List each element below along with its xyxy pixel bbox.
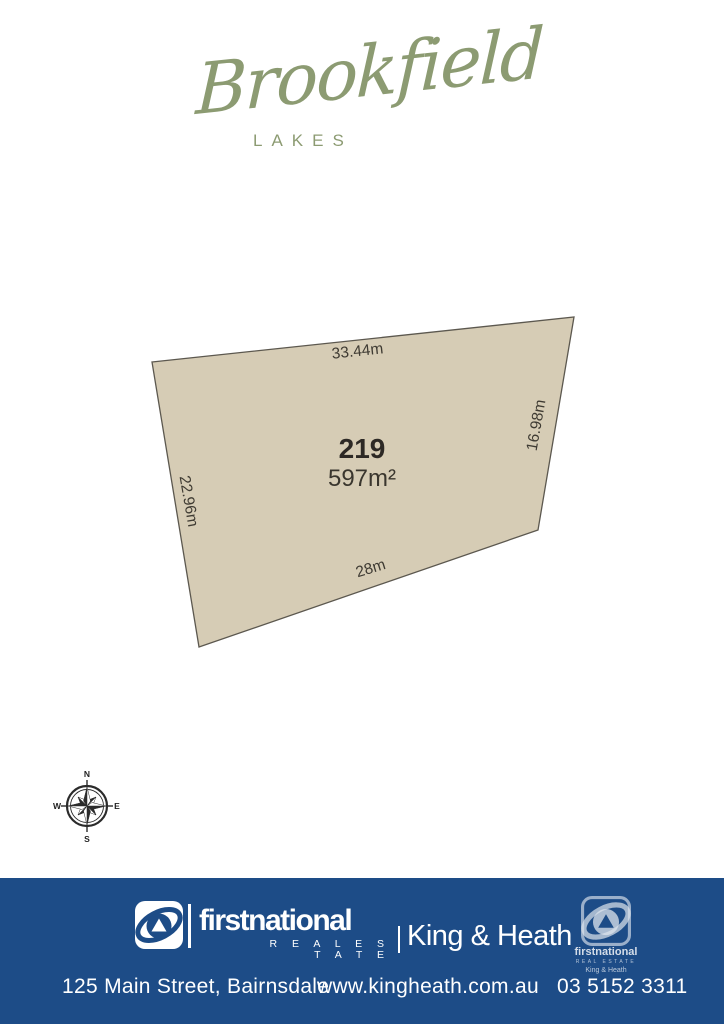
footer-band: firstnational R E A L E S T A T E King &… [0, 878, 724, 1024]
compass-north-label: N [84, 769, 90, 779]
compass-south-label: S [84, 834, 90, 844]
watermark-logo-icon [581, 896, 631, 946]
website-url: www.kingheath.com.au [317, 975, 539, 999]
watermark-logo: firstnational REAL ESTATE King & Heath [570, 896, 642, 977]
compass-rose-icon: N S W E [53, 766, 121, 848]
logo-divider [188, 904, 191, 948]
brand-logo-subtitle: LAKES [253, 131, 353, 151]
lot-area: 597m² [328, 465, 396, 492]
watermark-tagline: REAL ESTATE [570, 959, 642, 966]
phone-number: 03 5152 3311 [557, 975, 688, 999]
firstnational-wordmark: firstnational [199, 906, 351, 936]
watermark-wordmark: firstnational [570, 946, 642, 959]
brand-logo-script: Brookfield [195, 16, 536, 129]
compass-west-label: W [53, 801, 62, 811]
flyer-page: Brookfield LAKES 33.44m 16.98m 22.96m 28… [0, 0, 724, 1024]
office-address: 125 Main Street, Bairnsdale [62, 975, 329, 999]
compass-east-label: E [114, 801, 120, 811]
lot-number: 219 [339, 433, 386, 464]
lot-plan-diagram: 33.44m 16.98m 22.96m 28m 219 597m² [140, 300, 600, 670]
agency-name: King & Heath [407, 922, 572, 951]
firstnational-logo-icon [135, 901, 183, 949]
agency-divider [398, 926, 400, 953]
firstnational-tagline: R E A L E S T A T E [255, 939, 390, 960]
